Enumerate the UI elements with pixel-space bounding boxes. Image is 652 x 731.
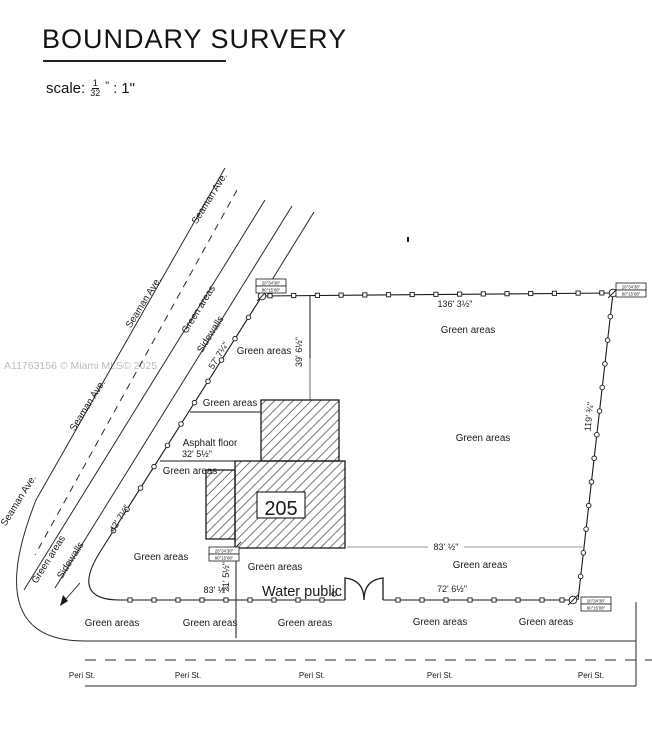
boundary-circle-marker	[179, 422, 184, 427]
dim-offset-south: 21' 5½"	[221, 562, 231, 592]
boundary-square-marker	[552, 291, 556, 295]
boundary-circle-marker	[586, 503, 591, 508]
green-areas-label: Green areas	[85, 618, 140, 629]
green-areas-label: Green areas	[456, 433, 511, 444]
boundary-circle-marker	[592, 456, 597, 461]
peri-st-label: Peri St.	[299, 671, 325, 680]
boundary-square-marker	[200, 598, 204, 602]
boundary-square-marker	[481, 292, 485, 296]
boundary-square-marker	[540, 598, 544, 602]
boundary-square-marker	[560, 598, 564, 602]
water-public-label: Water public	[262, 584, 342, 600]
boundary-square-marker	[458, 292, 462, 296]
bearing-box-text: 80°15'08"	[587, 605, 606, 610]
boundary-circle-marker	[600, 385, 605, 390]
boundary-circle-marker	[138, 486, 143, 491]
gate-symbol	[345, 578, 383, 600]
asphalt-floor-label: Asphalt floor	[183, 438, 238, 449]
peri-st-label: Peri St.	[578, 671, 604, 680]
bearing-box-text: 20°34'38"	[215, 548, 234, 553]
street-corner-curve-outer	[17, 500, 85, 641]
boundary-square-marker	[516, 598, 520, 602]
boundary-square-marker	[292, 293, 296, 297]
boundary-circle-marker	[584, 527, 589, 532]
boundary-square-marker	[576, 291, 580, 295]
boundary-square-marker	[315, 293, 319, 297]
boundary-square-marker	[529, 291, 533, 295]
boundary-square-marker	[396, 598, 400, 602]
boundary-circle-marker	[165, 443, 170, 448]
seaman-ave-label: Seaman Ave.	[0, 473, 39, 528]
boundary-circle-marker	[603, 362, 608, 367]
dim-west-lower: 42' 7¼"	[107, 503, 131, 534]
bearing-box-text: 20°34'38"	[622, 284, 641, 289]
green-areas-label: Green areas	[203, 398, 258, 409]
boundary-circle-marker	[608, 314, 613, 319]
boundary-square-marker	[468, 598, 472, 602]
boundary-circle-marker	[206, 379, 211, 384]
boundary-circle-marker	[581, 550, 586, 555]
boundary-square-marker	[248, 598, 252, 602]
survey-drawing: 205 20°34'38"80°15'08"20°34'38"80°15'08"…	[0, 0, 652, 731]
boundary-square-marker	[386, 293, 390, 297]
boundary-circle-marker	[233, 336, 238, 341]
boundary-square-marker	[176, 598, 180, 602]
green-areas-label: Green areas	[134, 552, 189, 563]
boundary-circle-marker	[589, 480, 594, 485]
dim-offset-north: 39' 6½"	[294, 337, 304, 367]
dim-bottom-right: 72' 6½"	[437, 584, 467, 594]
building-north-wing	[261, 400, 339, 461]
boundary-square-marker	[224, 598, 228, 602]
boundary-circle-marker	[246, 315, 251, 320]
boundary-square-marker	[410, 292, 414, 296]
bearing-box-text: 80°15'08"	[262, 287, 281, 292]
seaman-ave-label: Seaman Ave.	[124, 275, 164, 330]
green-areas-label: Green areas	[278, 618, 333, 629]
buildings	[206, 400, 345, 548]
green-areas-label: Green areas	[519, 617, 574, 628]
boundary-square-marker	[363, 293, 367, 297]
dim-mid-width: 83' ½"	[434, 542, 459, 552]
boundary-square-marker	[444, 598, 448, 602]
boundary-survey-page: BOUNDARY SURVERY scale: 1 32 " : 1" A117…	[0, 0, 652, 731]
dim-asphalt-width: 32' 5½"	[182, 449, 212, 459]
bearing-box-text: 80°15'08"	[215, 555, 234, 560]
green-areas-label: Green areas	[163, 466, 218, 477]
green-areas-label: Green areas	[413, 617, 468, 628]
boundary-circle-marker	[595, 432, 600, 437]
seaman-ave-label: Seaman Ave.	[190, 171, 230, 226]
boundary-square-marker	[492, 598, 496, 602]
bearing-box-text: 80°15'08"	[622, 291, 641, 296]
boundary-square-marker	[434, 292, 438, 296]
boundary-square-marker	[505, 292, 509, 296]
boundary-circle-marker	[152, 464, 157, 469]
dim-top-boundary: 136' 3½"	[438, 299, 473, 309]
bearing-box-text: 20°34'38"	[262, 280, 281, 285]
peri-st-label: Peri St.	[175, 671, 201, 680]
peri-st-label: Peri St.	[427, 671, 453, 680]
survey-tick-mark	[407, 237, 409, 242]
peri-st-label: Peri St.	[69, 671, 95, 680]
peri-st-street-lines	[85, 602, 652, 686]
boundary-square-marker	[268, 294, 272, 298]
boundary-square-marker	[152, 598, 156, 602]
building-west-wing	[206, 470, 235, 539]
green-areas-label: Green areas	[453, 560, 508, 571]
boundary-circle-marker	[192, 400, 197, 405]
leader-line	[65, 583, 80, 600]
boundary-square-marker	[420, 598, 424, 602]
leader-arrow-icon	[60, 595, 68, 606]
boundary-square-marker	[600, 291, 604, 295]
boundary-circle-marker	[597, 409, 602, 414]
dimension-labels: 136' 3½" 39' 6½" 57' 7¼" 42' 7¼" 119' ¾"…	[107, 299, 595, 595]
boundary-circle-marker	[605, 338, 610, 343]
seaman-ave-label: Seaman Ave.	[68, 378, 108, 433]
boundary-square-marker	[128, 598, 132, 602]
bearing-box-text: 20°34'38"	[587, 598, 606, 603]
building-number: 205	[264, 498, 297, 520]
boundary-corner-curve	[89, 552, 120, 600]
boundary-square-marker	[339, 293, 343, 297]
green-areas-label: Green areas	[183, 618, 238, 629]
green-areas-label: Green areas	[441, 325, 496, 336]
dim-east-boundary: 119' ¾"	[583, 402, 596, 432]
green-areas-label: Green areas	[237, 346, 292, 357]
boundary-circle-marker	[578, 574, 583, 579]
green-areas-label: Green areas	[248, 562, 303, 573]
